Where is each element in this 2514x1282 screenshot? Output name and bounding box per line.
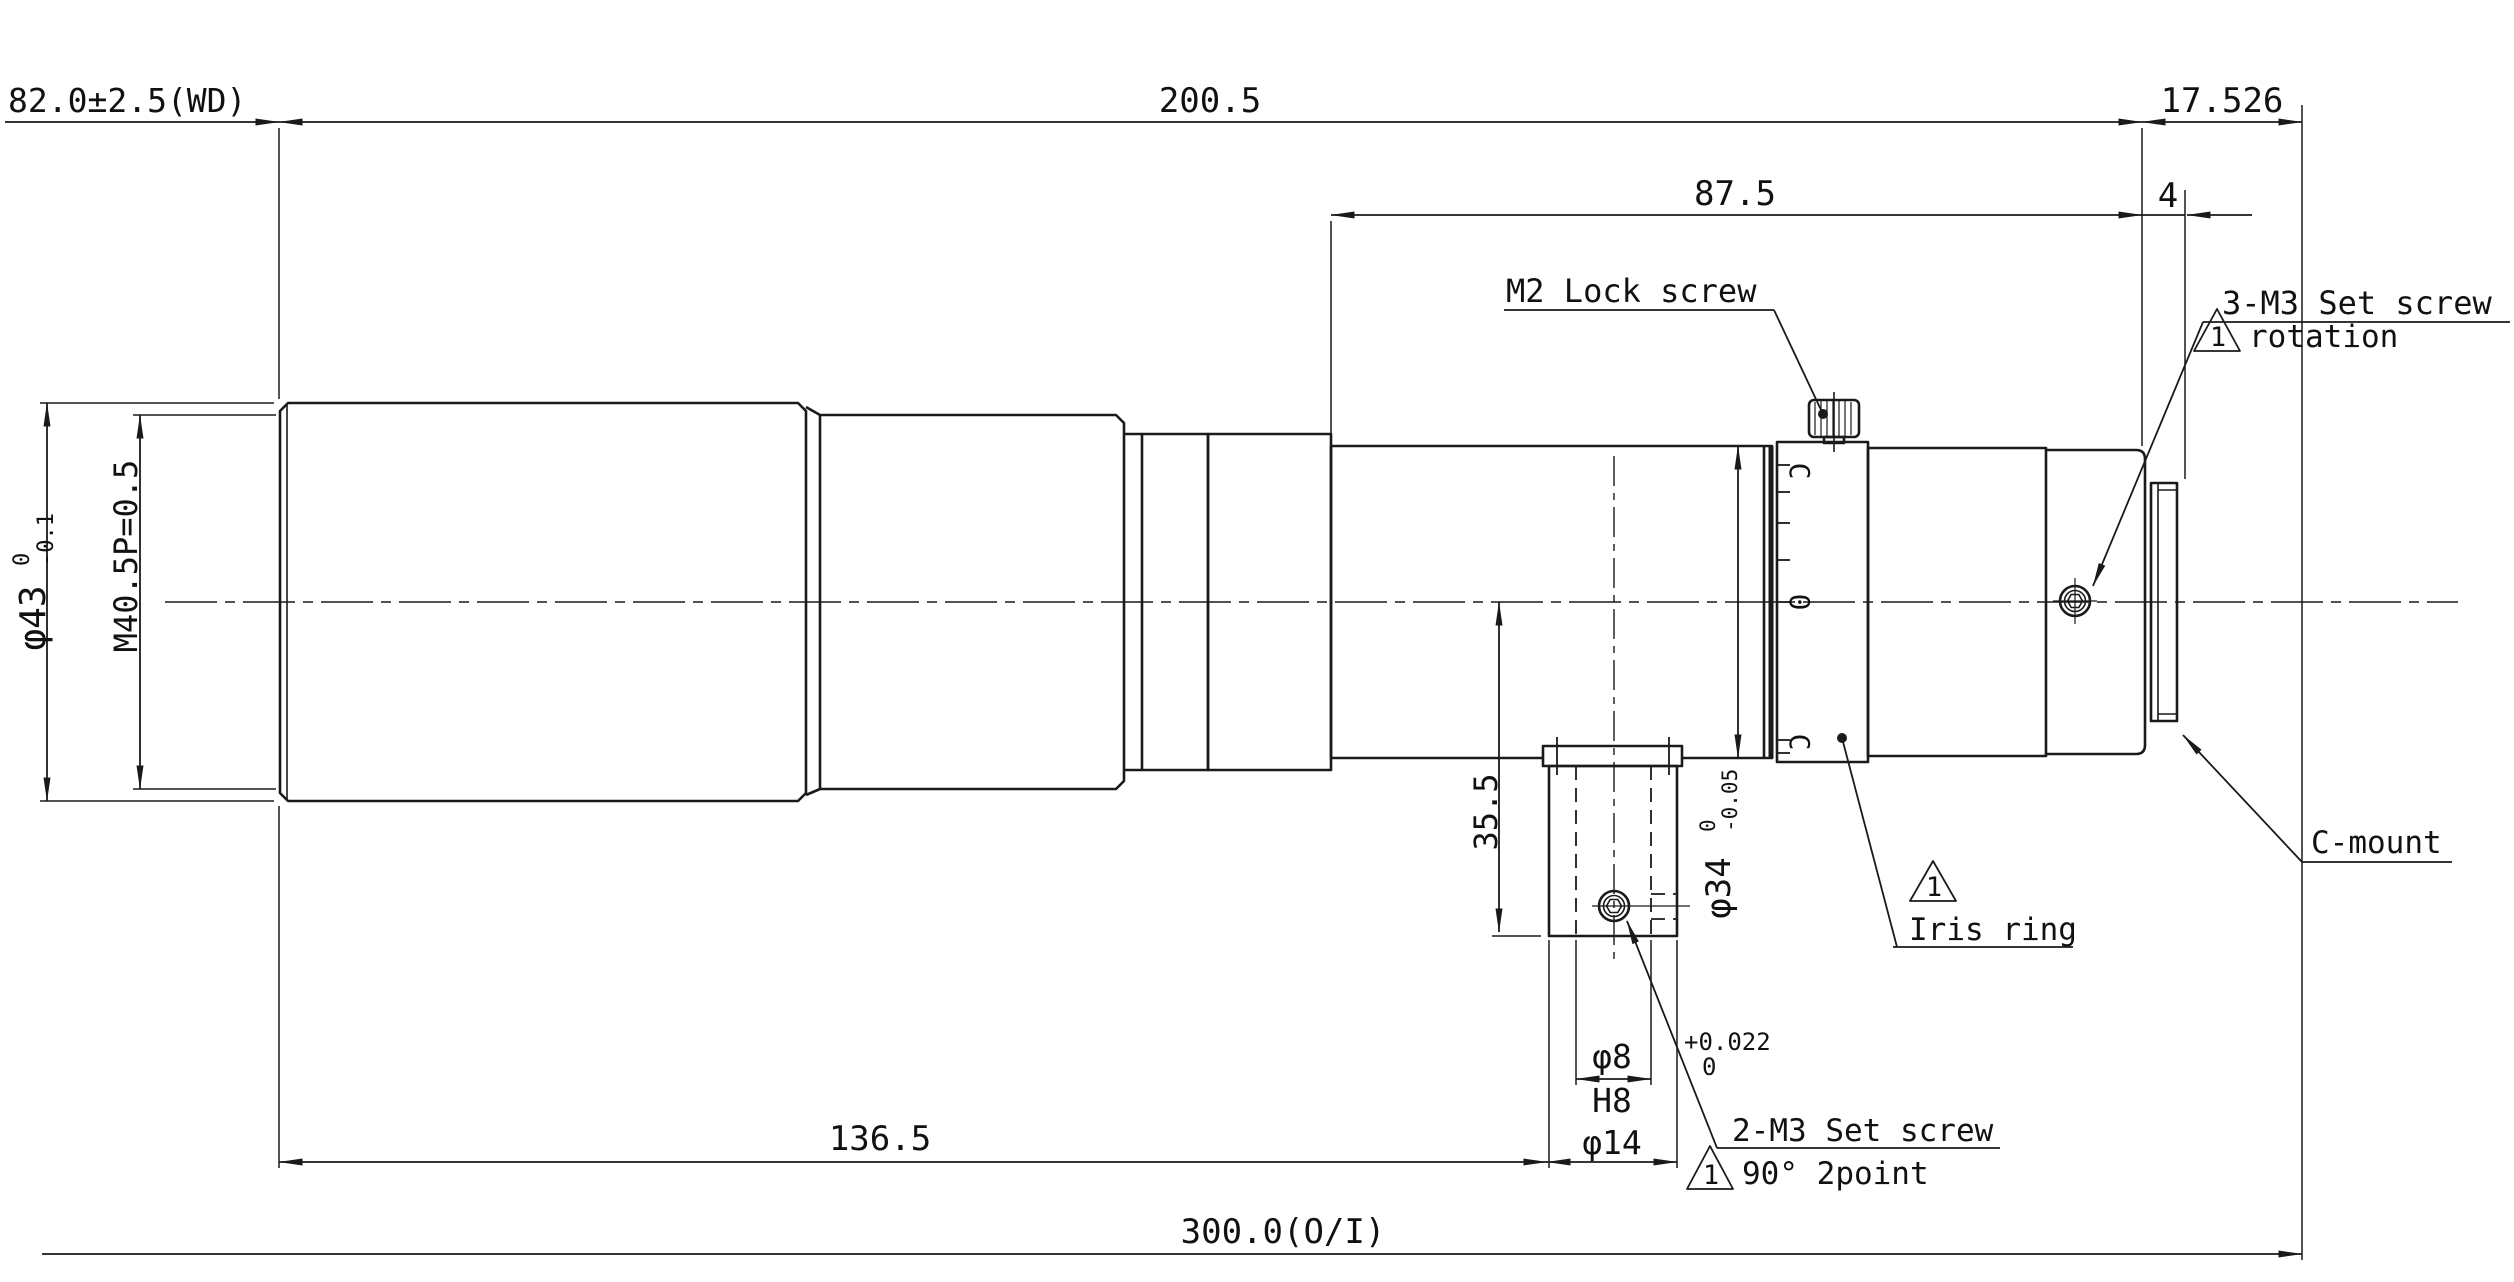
dim-lens-length: 200.5 <box>1159 81 1261 121</box>
label-3m3-set-screw: 3-M3 Set screw <box>2222 284 2492 322</box>
svg-text:M40.5P=0.5: M40.5P=0.5 <box>107 460 145 653</box>
dim-cmount-thread-length: 4 <box>2158 176 2178 216</box>
dim-foot-hole-tol-upper: +0.022 <box>1684 1028 1771 1056</box>
mounting-foot <box>1543 737 1690 936</box>
svg-text:φ43: φ43 <box>13 585 54 650</box>
dim-front-thread: M40.5P=0.5 <box>107 460 145 653</box>
svg-text:-0.1: -0.1 <box>34 513 59 566</box>
svg-text:35.5: 35.5 <box>1467 773 1505 850</box>
warning-number-iris: 1 <box>1926 872 1942 903</box>
iris-scale-middle: 0 <box>1783 594 1816 611</box>
foot-flange <box>1543 746 1682 766</box>
rear-set-screw <box>2053 578 2097 624</box>
dim-tube-diameter: φ34 0 -0.05 <box>1696 769 1742 919</box>
dim-foot-hole: φ8 <box>1592 1037 1632 1076</box>
svg-text:0: 0 <box>1696 819 1720 832</box>
dim-foot-height: 35.5 <box>1467 773 1505 850</box>
leader-lines <box>1504 310 2510 1148</box>
drawing-page: 1 1 1 82.0±2.5(WD) 200.5 17.526 87.5 4 1… <box>0 0 2514 1282</box>
iris-scale-labels: C 0 C <box>1783 463 1816 751</box>
label-rotation-note: rotation <box>2249 319 2398 355</box>
warning-number-2point: 1 <box>1703 1160 1719 1191</box>
label-iris-ring: Iris ring <box>1909 912 2077 948</box>
foot-boss <box>1549 766 1677 936</box>
warning-number-rotation: 1 <box>2210 322 2226 353</box>
dim-rear-section-length: 87.5 <box>1694 174 1776 214</box>
dim-foot-hole-fit: H8 <box>1592 1081 1632 1120</box>
lock-screw-knurling <box>1815 401 1851 436</box>
leader-dot-lock-screw <box>1818 409 1828 419</box>
svg-text:0: 0 <box>10 553 35 566</box>
label-texts: M2 Lock screw 3-M3 Set screw rotation Ir… <box>1506 272 2492 1192</box>
iris-scale-top: C <box>1783 463 1816 480</box>
dim-object-to-image: 300.0(O/I) <box>1181 1212 1386 1252</box>
dim-foot-hole-tol-lower: 0 <box>1702 1053 1716 1081</box>
hood-step <box>806 407 820 795</box>
label-c-mount: C-mount <box>2311 825 2442 861</box>
dim-front-diameter: φ43 0 -0.1 <box>10 513 59 651</box>
dim-front-to-foot: 136.5 <box>829 1119 931 1159</box>
dim-flange-back: 17.526 <box>2161 81 2284 121</box>
label-m2-lock-screw: M2 Lock screw <box>1506 272 1757 310</box>
dimension-texts: 82.0±2.5(WD) 200.5 17.526 87.5 4 136.5 3… <box>8 81 2283 1252</box>
iris-scale-bottom: C <box>1783 734 1816 751</box>
centerlines <box>165 456 2458 966</box>
dim-boss-diameter: φ14 <box>1582 1123 1642 1162</box>
lens-mechanical-drawing: 1 1 1 82.0±2.5(WD) 200.5 17.526 87.5 4 1… <box>0 0 2514 1282</box>
svg-text:φ34: φ34 <box>1699 857 1739 918</box>
dim-working-distance: 82.0±2.5(WD) <box>8 81 246 120</box>
svg-text:-0.05: -0.05 <box>1718 769 1742 832</box>
extension-lines <box>40 105 2302 1260</box>
label-2m3-set-screw: 2-M3 Set screw <box>1732 1113 1994 1149</box>
label-90deg-2point-note: 90° 2point <box>1742 1156 1929 1192</box>
foot-set-screw <box>1592 891 1690 921</box>
dimension-lines <box>5 122 2302 1254</box>
